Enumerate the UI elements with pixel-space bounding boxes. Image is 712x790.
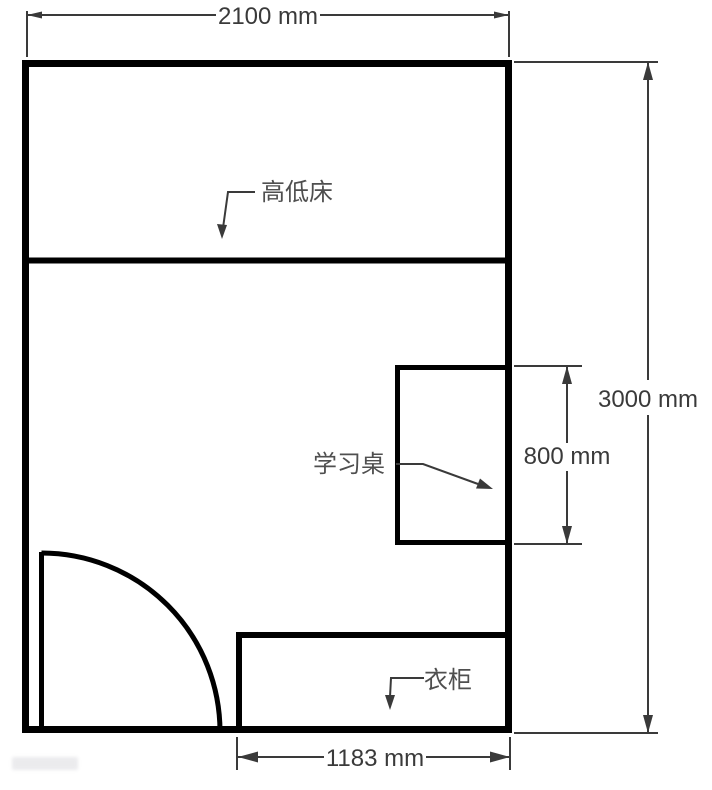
callout-bed: 高低床 <box>217 179 333 239</box>
bed-label: 高低床 <box>261 179 333 206</box>
arrowhead-down-icon <box>562 526 572 544</box>
arrowhead-right-icon <box>490 752 510 763</box>
desk-outline <box>398 368 510 543</box>
dim-room-height-label: 3000 mm <box>598 386 698 413</box>
watermark <box>12 757 78 770</box>
arrowhead-left-icon <box>238 752 258 763</box>
leader-line <box>223 192 255 228</box>
floor-plan-canvas: 2100 mm 3000 mm 800 mm <box>0 0 712 790</box>
dim-desk-depth-label: 800 mm <box>524 443 611 470</box>
callout-wardrobe: 衣柜 <box>385 667 472 710</box>
arrowhead-left-icon <box>27 12 42 19</box>
arrowhead-up-icon <box>562 366 572 384</box>
dim-room-width-label: 2100 mm <box>218 3 318 30</box>
floor-plan-svg: 2100 mm 3000 mm 800 mm <box>0 0 712 790</box>
arrowhead-down-icon <box>217 224 227 239</box>
callout-desk: 学习桌 <box>313 451 493 489</box>
dim-desk-depth: 800 mm <box>514 366 610 544</box>
dim-room-width: 2100 mm <box>27 3 509 57</box>
room-walls <box>26 64 509 730</box>
wardrobe-label: 衣柜 <box>424 667 472 694</box>
door-swing-arc <box>42 553 221 732</box>
leader-line <box>390 678 424 697</box>
leader-line <box>396 464 478 484</box>
arrowhead-down-icon <box>643 715 653 733</box>
dim-wardrobe-width: 1183 mm <box>237 737 510 772</box>
arrowhead-right-icon <box>476 479 493 490</box>
desk-label: 学习桌 <box>313 451 385 478</box>
arrowhead-down-icon <box>385 695 395 710</box>
dim-room-height: 3000 mm <box>514 62 698 733</box>
arrowhead-up-icon <box>643 62 653 80</box>
arrowhead-right-icon <box>494 12 509 19</box>
dim-wardrobe-width-label: 1183 mm <box>326 745 424 772</box>
